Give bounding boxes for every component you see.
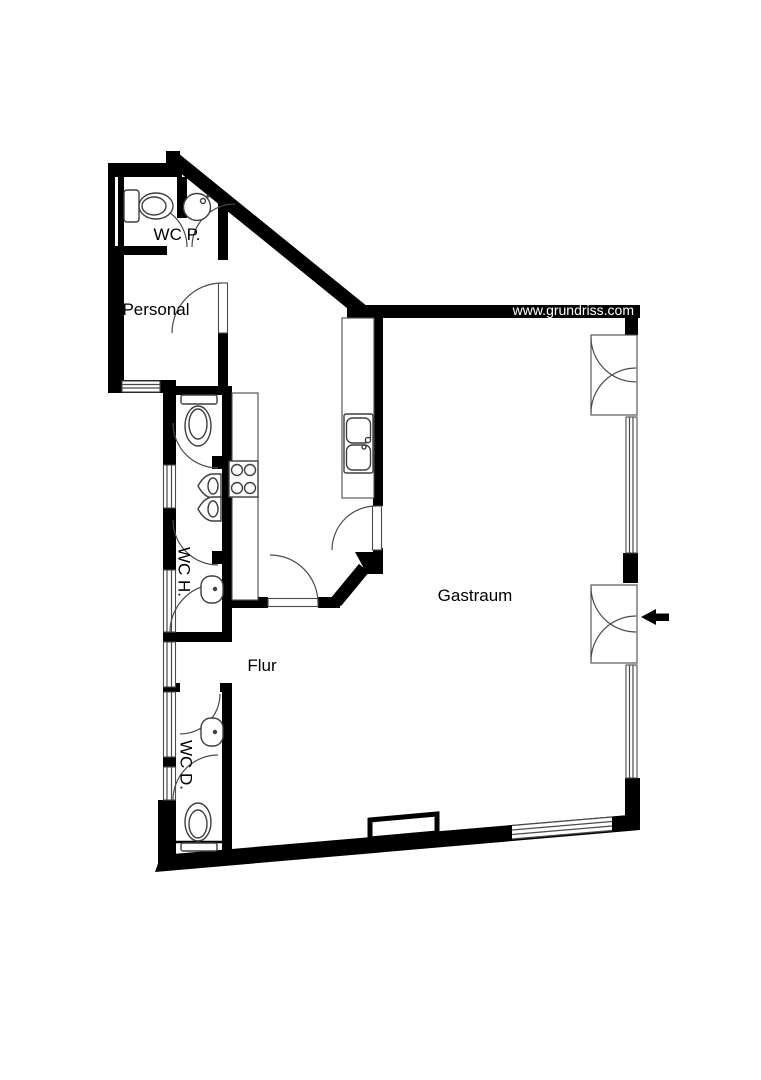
- door-kitchen-south: [268, 555, 318, 607]
- stove-icon: [229, 461, 258, 497]
- wall-strip-left-d: [158, 800, 176, 868]
- room-label-personal: Personal: [122, 300, 189, 319]
- window-right-1: [626, 417, 637, 553]
- urinal-icon-1: [198, 474, 221, 498]
- wall-wcp-divider-left: [114, 246, 167, 255]
- wall-personal-right-lower: [218, 333, 228, 393]
- toilet-icon-wch: [181, 395, 217, 446]
- wall-kitchen-chamfer: [336, 568, 364, 602]
- room-label-flur: Flur: [247, 656, 277, 675]
- wall-strip-left-c: [163, 757, 176, 767]
- wall-kitchen-bottom-right: [318, 597, 340, 608]
- kitchen-sink-icon: [344, 414, 373, 473]
- floorplan-drawing: WC P. Personal WC H. Flur WC D. Gastraum…: [0, 0, 761, 1080]
- window-left-2: [164, 570, 176, 632]
- wall-strip-top: [163, 386, 232, 395]
- room-label-gastraum: Gastraum: [438, 586, 513, 605]
- window-left-3: [164, 642, 176, 687]
- wall-wch-stub-2: [212, 551, 232, 564]
- door-gastraum-entrance: [591, 585, 637, 663]
- wall-wcd-top-right: [220, 683, 232, 692]
- sink-icon-wch: [201, 576, 223, 603]
- room-label-wc-d: WC D.: [177, 740, 196, 790]
- window-personal-bottom: [122, 381, 160, 392]
- wall-wcp-divider-right: [218, 246, 228, 255]
- wall-strip-right-lower: [222, 683, 232, 852]
- entrance-arrow-icon: [641, 609, 669, 625]
- wall-strip-left-a: [163, 388, 176, 465]
- window-left-4: [164, 692, 176, 757]
- door-kitchen-east: [332, 506, 382, 550]
- pillar: [370, 814, 437, 839]
- wall-left-personal: [108, 253, 124, 393]
- fixtures: [124, 190, 669, 851]
- door-gastraum-top: [591, 335, 637, 415]
- room-label-wc-p: WC P.: [154, 225, 201, 244]
- toilet-icon-wcp: [124, 190, 173, 222]
- wall-wch-divider: [163, 632, 232, 642]
- window-right-2: [626, 665, 637, 778]
- wall-left-outer: [108, 163, 115, 253]
- sink-icon-wcd: [201, 718, 223, 746]
- floorplan-page: WC P. Personal WC H. Flur WC D. Gastraum…: [0, 0, 761, 1080]
- wall-right-pier-2: [623, 553, 638, 583]
- room-label-wc-h: WC H.: [175, 547, 194, 597]
- wall-diagonal: [173, 158, 363, 312]
- wall-strip-left-b: [163, 508, 176, 570]
- wall-right-pier-1: [625, 318, 638, 335]
- wall-shaft-inner: [118, 177, 124, 253]
- urinal-icon-2: [198, 497, 221, 521]
- sink-icon-wcp: [184, 194, 211, 221]
- window-left-1: [164, 465, 176, 508]
- toilet-icon-wcd: [181, 803, 217, 851]
- watermark-text: www.grundriss.com: [512, 302, 634, 318]
